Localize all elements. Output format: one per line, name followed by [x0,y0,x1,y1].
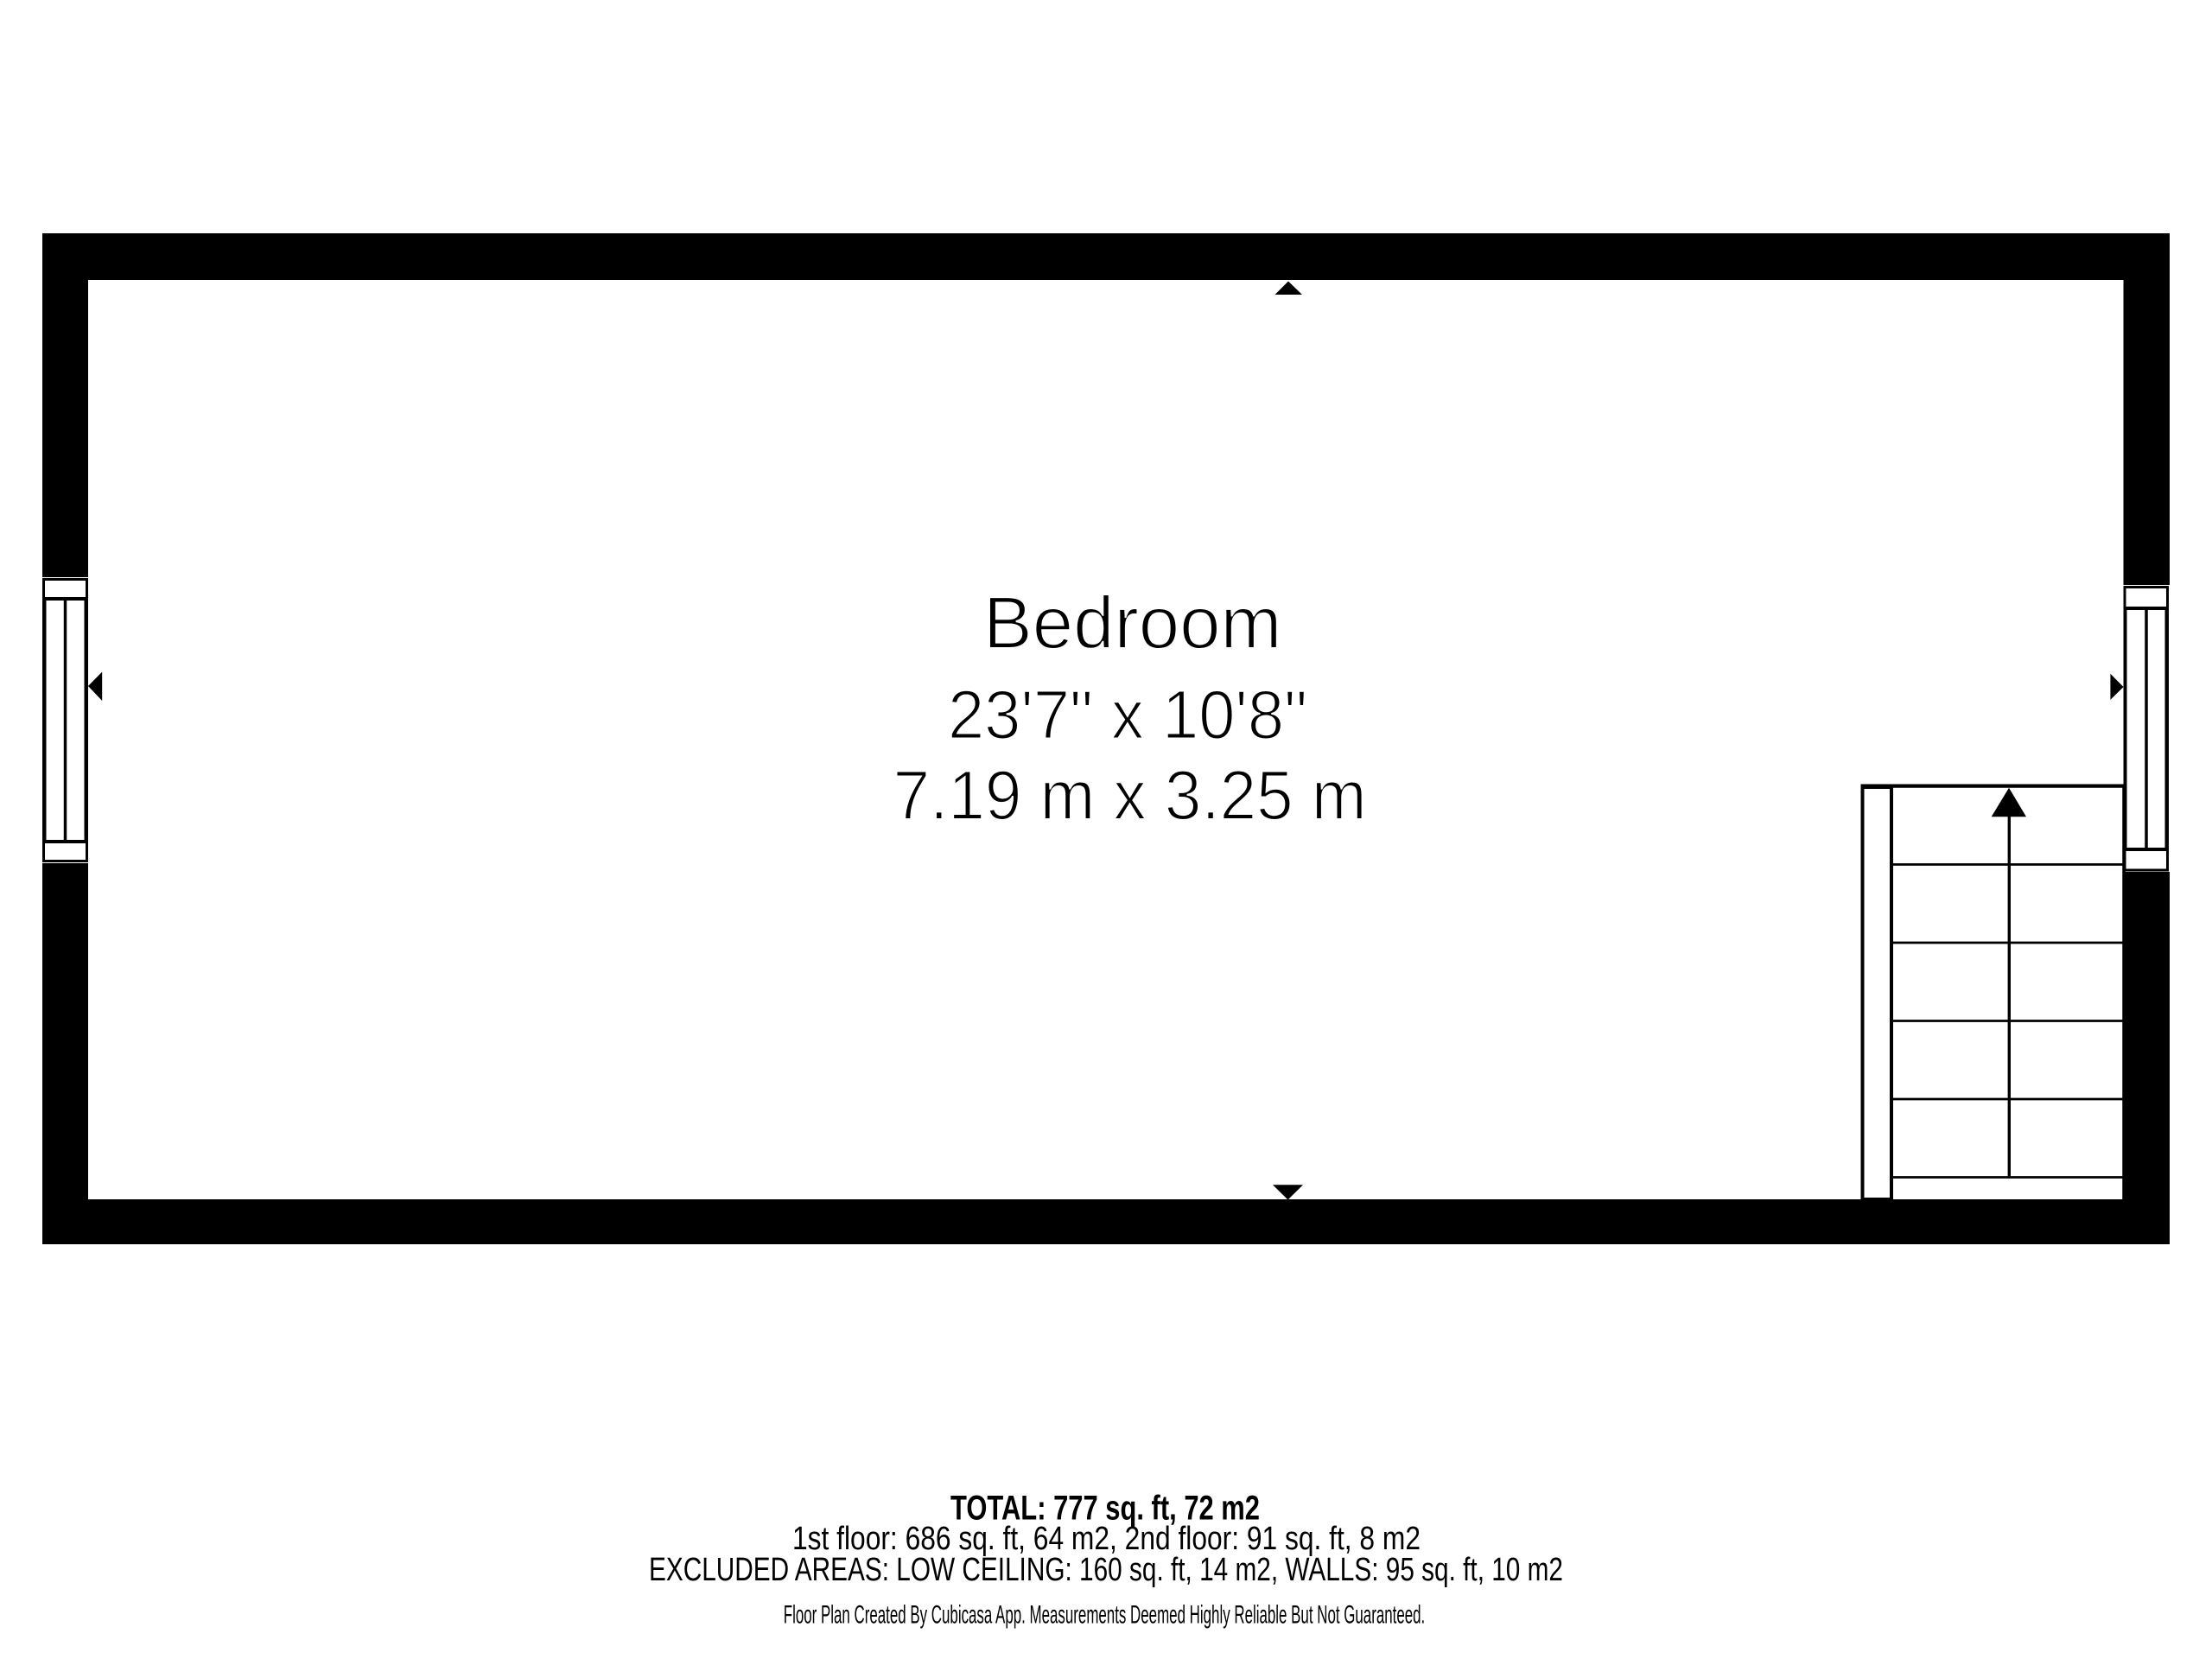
svg-text:7.19 m x 3.25 m: 7.19 m x 3.25 m [893,757,1367,835]
svg-text:Floor Plan Created By Cubicasa: Floor Plan Created By Cubicasa App. Meas… [784,1601,1426,1630]
svg-text:EXCLUDED AREAS: LOW CEILING: 1: EXCLUDED AREAS: LOW CEILING: 160 sq. ft,… [649,1552,1563,1588]
svg-text:23'7" x 10'8": 23'7" x 10'8" [948,677,1307,753]
svg-text:Bedroom: Bedroom [983,582,1282,664]
